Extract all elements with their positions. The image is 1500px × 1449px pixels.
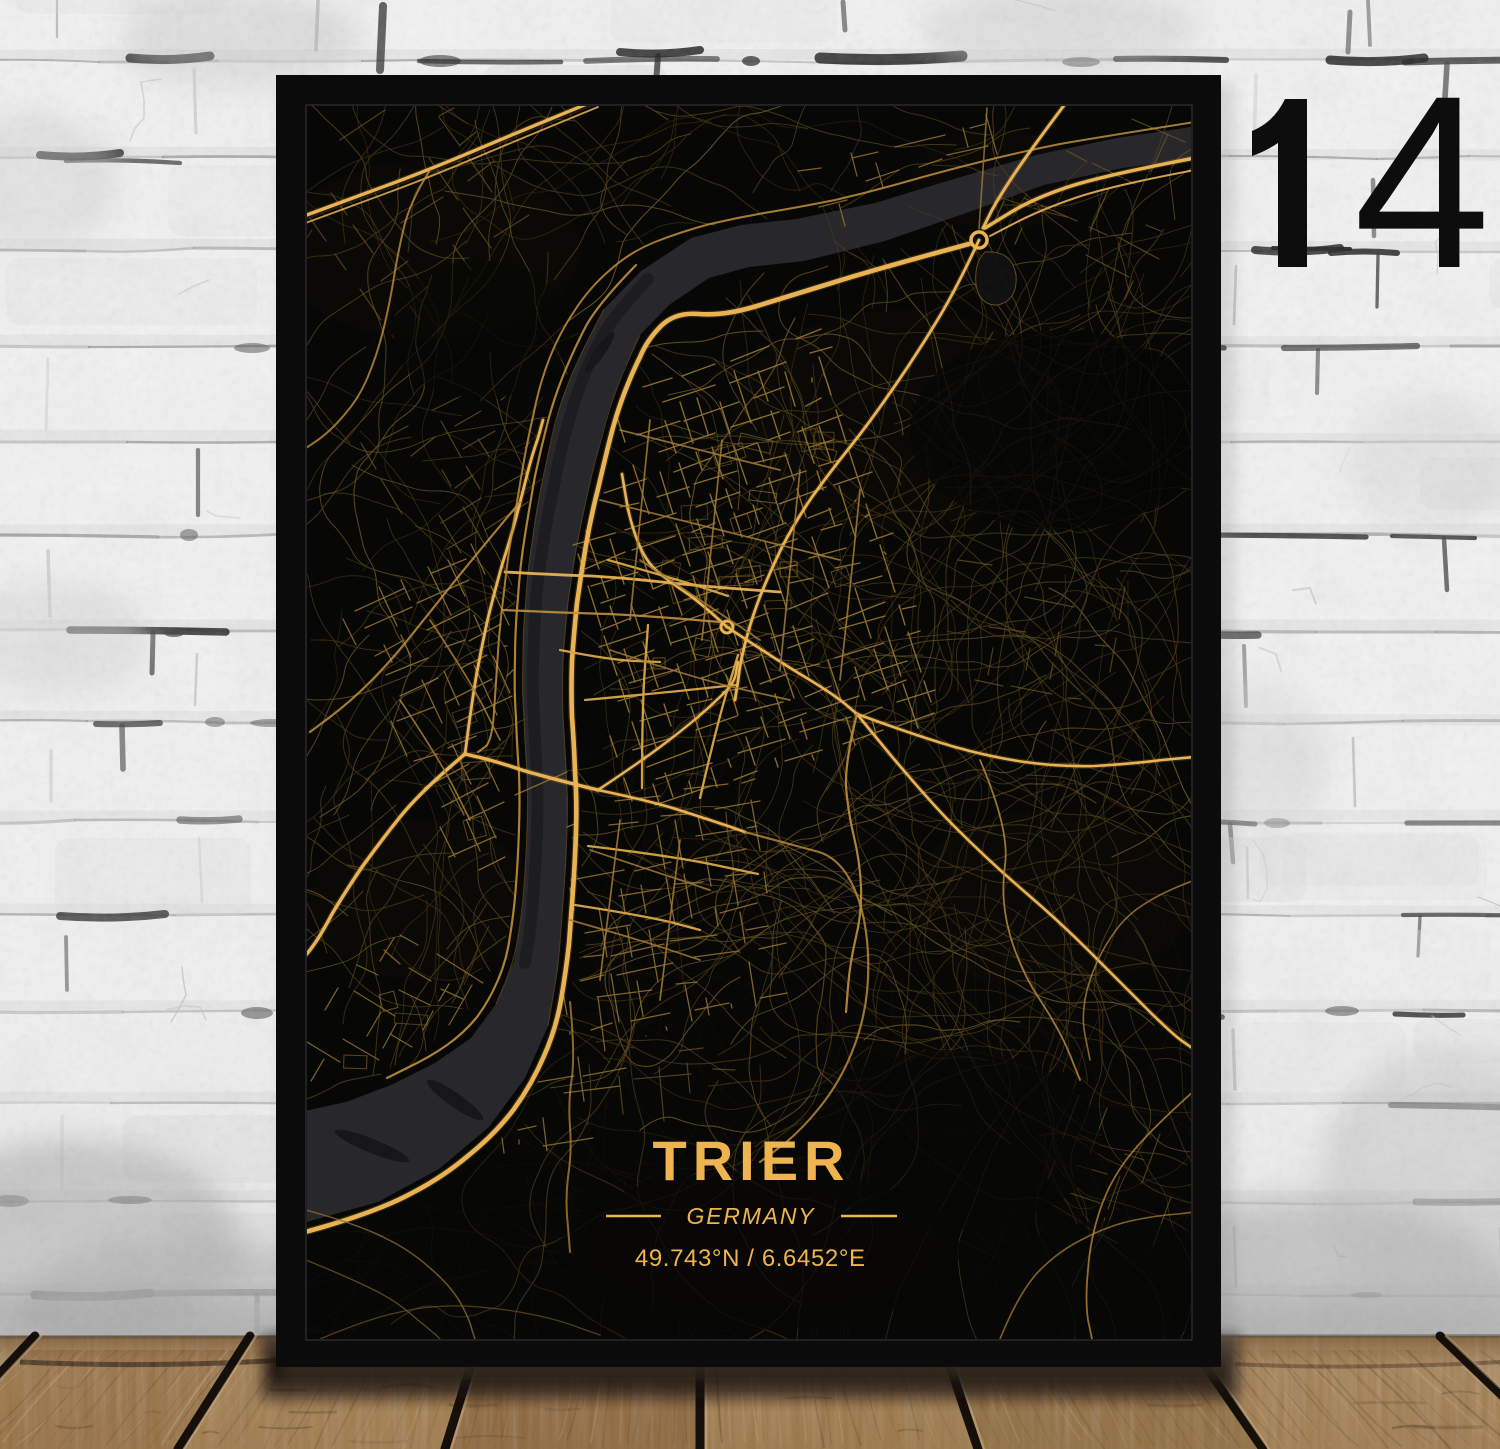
svg-text:TRIER: TRIER	[653, 1129, 851, 1192]
svg-text:GERMANY: GERMANY	[687, 1203, 816, 1229]
svg-text:4: 4	[1354, 45, 1491, 320]
svg-text:49.743°N / 6.6452°E: 49.743°N / 6.6452°E	[635, 1245, 866, 1272]
